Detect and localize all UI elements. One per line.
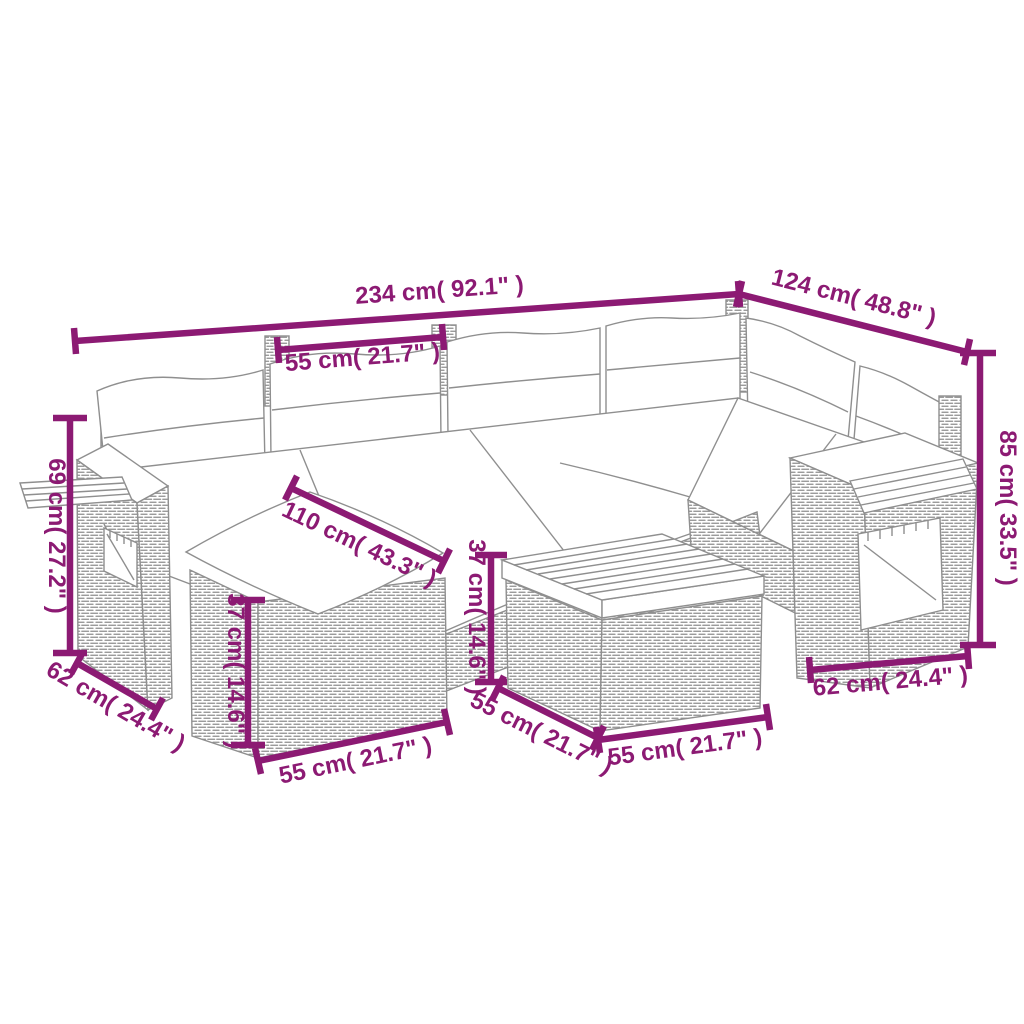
dim-label-ottoman-height: 37 cm( 14.6" ) (222, 593, 249, 748)
left-armrest (20, 444, 172, 710)
side-pocket (858, 518, 943, 630)
dim-label-overall-width: 234 cm( 92.1" ) (354, 271, 524, 310)
dim-label-arm-height: 69 cm( 27.2" ) (43, 458, 70, 613)
diagram-page: 234 cm( 92.1" ) 124 cm( 48.8" ) 55 cm( 2… (0, 0, 1024, 1024)
dim-label-back-height: 85 cm( 33.5" ) (994, 430, 1021, 585)
right-end-post (939, 396, 961, 455)
dim-label-table-height: 37 cm( 14.6" ) (463, 539, 490, 694)
table-base-right (600, 596, 762, 731)
coffee-table (502, 534, 764, 731)
dimension-diagram: 234 cm( 92.1" ) 124 cm( 48.8" ) 55 cm( 2… (0, 0, 1024, 1024)
